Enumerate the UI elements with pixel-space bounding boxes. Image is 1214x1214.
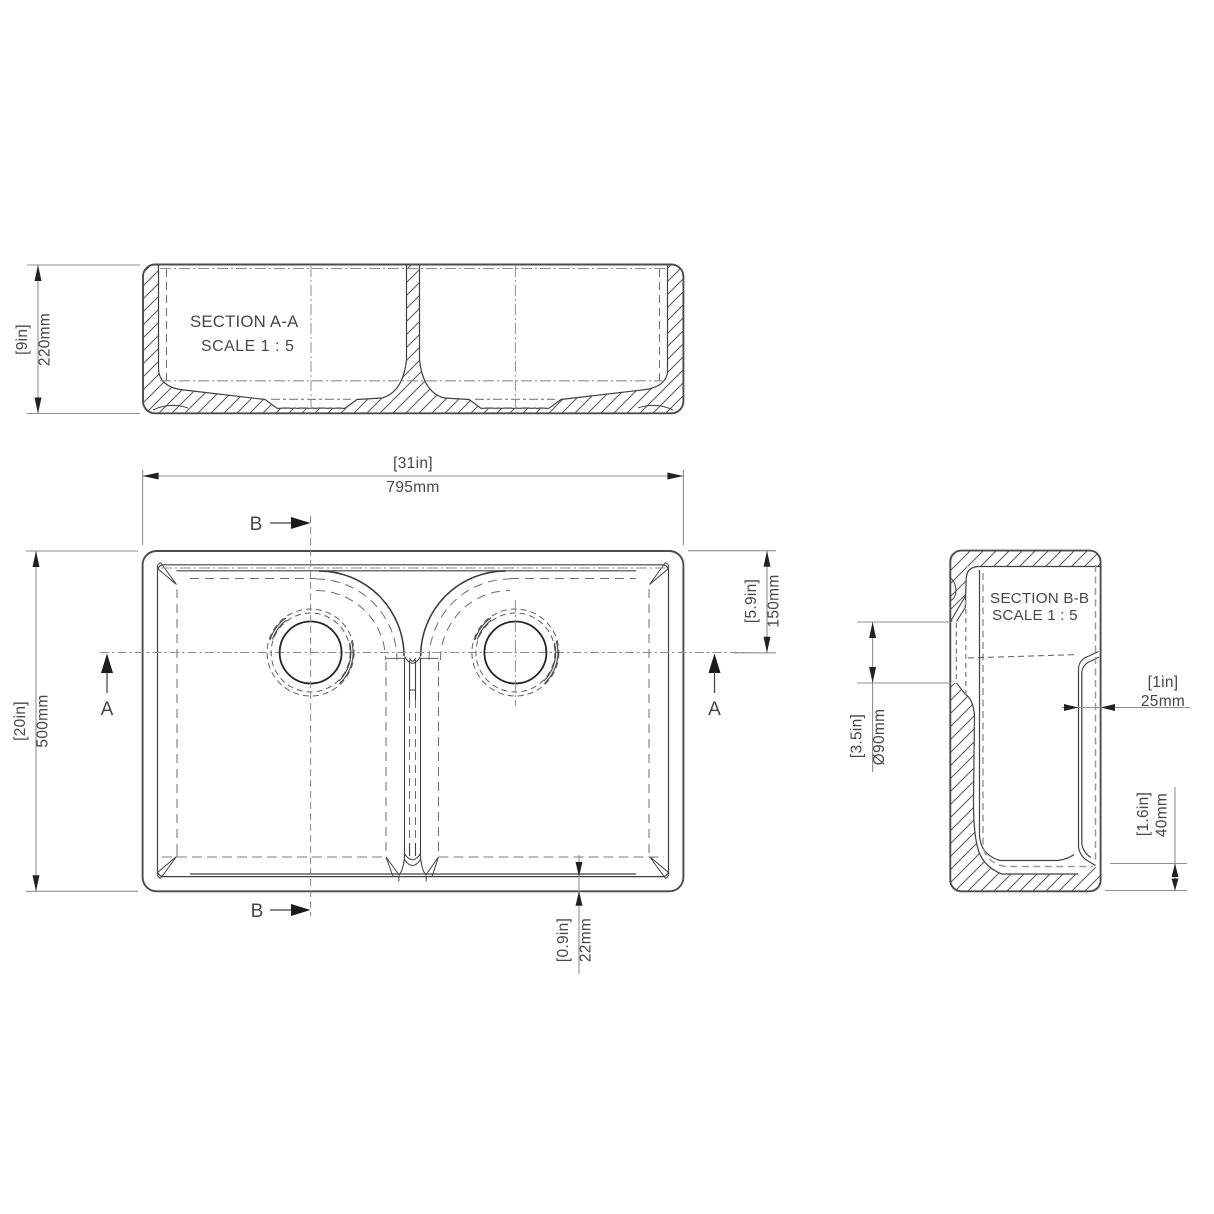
svg-text:Ø90mm: Ø90mm (871, 709, 888, 766)
svg-text:220mm: 220mm (37, 313, 54, 366)
svg-text:[31in]: [31in] (393, 455, 433, 472)
svg-text:[0.9in]: [0.9in] (555, 918, 572, 962)
svg-text:B: B (250, 514, 263, 535)
svg-text:795mm: 795mm (386, 479, 439, 496)
svg-text:A: A (101, 699, 114, 720)
svg-text:22mm: 22mm (578, 918, 595, 962)
svg-text:[1.6in]: [1.6in] (1135, 792, 1152, 836)
svg-text:SCALE 1 : 5: SCALE 1 : 5 (201, 338, 295, 355)
svg-text:[9in]: [9in] (14, 324, 31, 355)
svg-text:25mm: 25mm (1141, 693, 1185, 710)
svg-text:[20in]: [20in] (12, 701, 29, 741)
svg-text:SCALE 1 : 5: SCALE 1 : 5 (992, 607, 1078, 624)
svg-text:500mm: 500mm (35, 694, 52, 747)
svg-text:40mm: 40mm (1154, 793, 1171, 837)
svg-text:[5.9in]: [5.9in] (743, 579, 760, 623)
svg-text:B: B (251, 901, 264, 922)
svg-text:SECTION B-B: SECTION B-B (990, 590, 1089, 607)
svg-text:150mm: 150mm (766, 574, 783, 627)
svg-text:SECTION A-A: SECTION A-A (190, 312, 299, 331)
svg-text:[3.5in]: [3.5in] (849, 714, 866, 758)
svg-text:A: A (708, 699, 721, 720)
svg-text:[1in]: [1in] (1148, 674, 1179, 691)
